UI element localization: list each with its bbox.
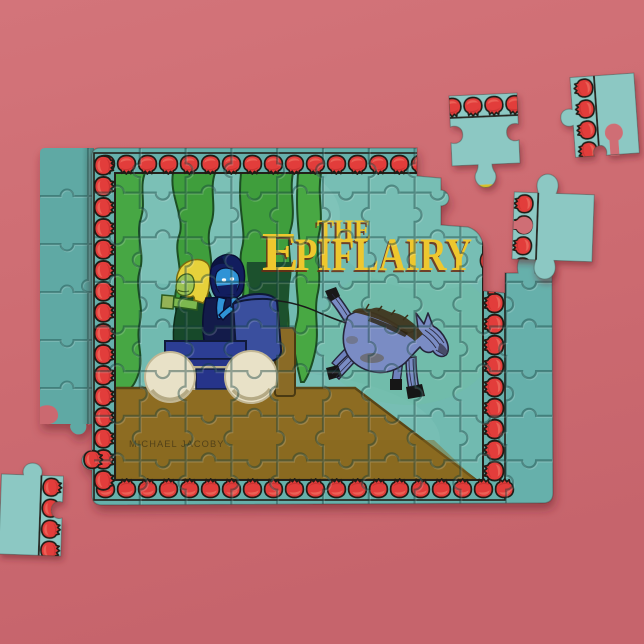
svg-text:MICHAEL JACOBY: MICHAEL JACOBY — [129, 439, 224, 449]
svg-text:E: E — [262, 221, 299, 282]
